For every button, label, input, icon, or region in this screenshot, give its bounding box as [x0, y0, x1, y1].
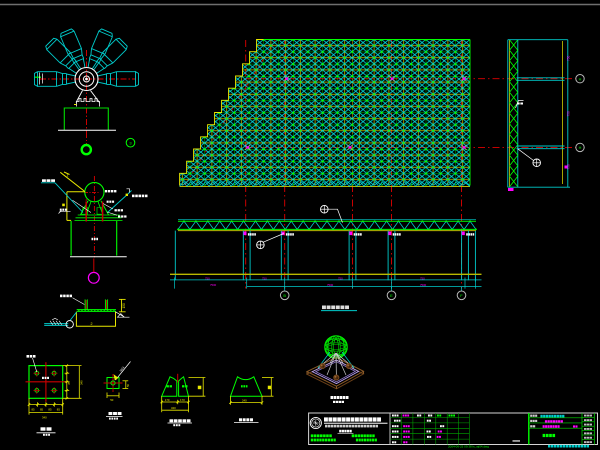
svg-text:170: 170: [165, 398, 170, 402]
svg-text:7500: 7500: [210, 283, 217, 287]
svg-text:B: B: [283, 293, 286, 298]
svg-text:150: 150: [122, 303, 126, 309]
svg-text:750: 750: [338, 276, 343, 280]
svg-text:50: 50: [126, 383, 130, 387]
svg-text:340: 340: [42, 415, 47, 419]
svg-text:750: 750: [205, 276, 210, 280]
svg-text:240: 240: [242, 398, 247, 402]
svg-text:H: H: [579, 77, 582, 81]
svg-text:85: 85: [67, 381, 71, 385]
svg-text:750: 750: [567, 111, 571, 117]
svg-text:7500: 7500: [327, 283, 334, 287]
svg-text:340: 340: [79, 380, 83, 385]
svg-text:H: H: [579, 146, 582, 150]
svg-text:2: 2: [91, 322, 93, 326]
svg-text:50: 50: [110, 398, 114, 402]
svg-text:85: 85: [32, 407, 36, 411]
svg-text:750: 750: [567, 55, 571, 61]
svg-text:E: E: [390, 293, 393, 298]
svg-text:750: 750: [420, 276, 425, 280]
svg-text:7500: 7500: [420, 283, 427, 287]
svg-text:85: 85: [48, 407, 52, 411]
svg-text:85: 85: [40, 407, 44, 411]
svg-text:1: 1: [67, 174, 69, 178]
svg-text:340: 340: [171, 406, 176, 410]
svg-text:2004-06-25 09:38 ls_wj04.dwg: 2004-06-25 09:38 ls_wj04.dwg: [448, 445, 489, 449]
svg-text:85: 85: [57, 407, 61, 411]
svg-text:170: 170: [180, 398, 185, 402]
svg-text:750: 750: [262, 276, 267, 280]
